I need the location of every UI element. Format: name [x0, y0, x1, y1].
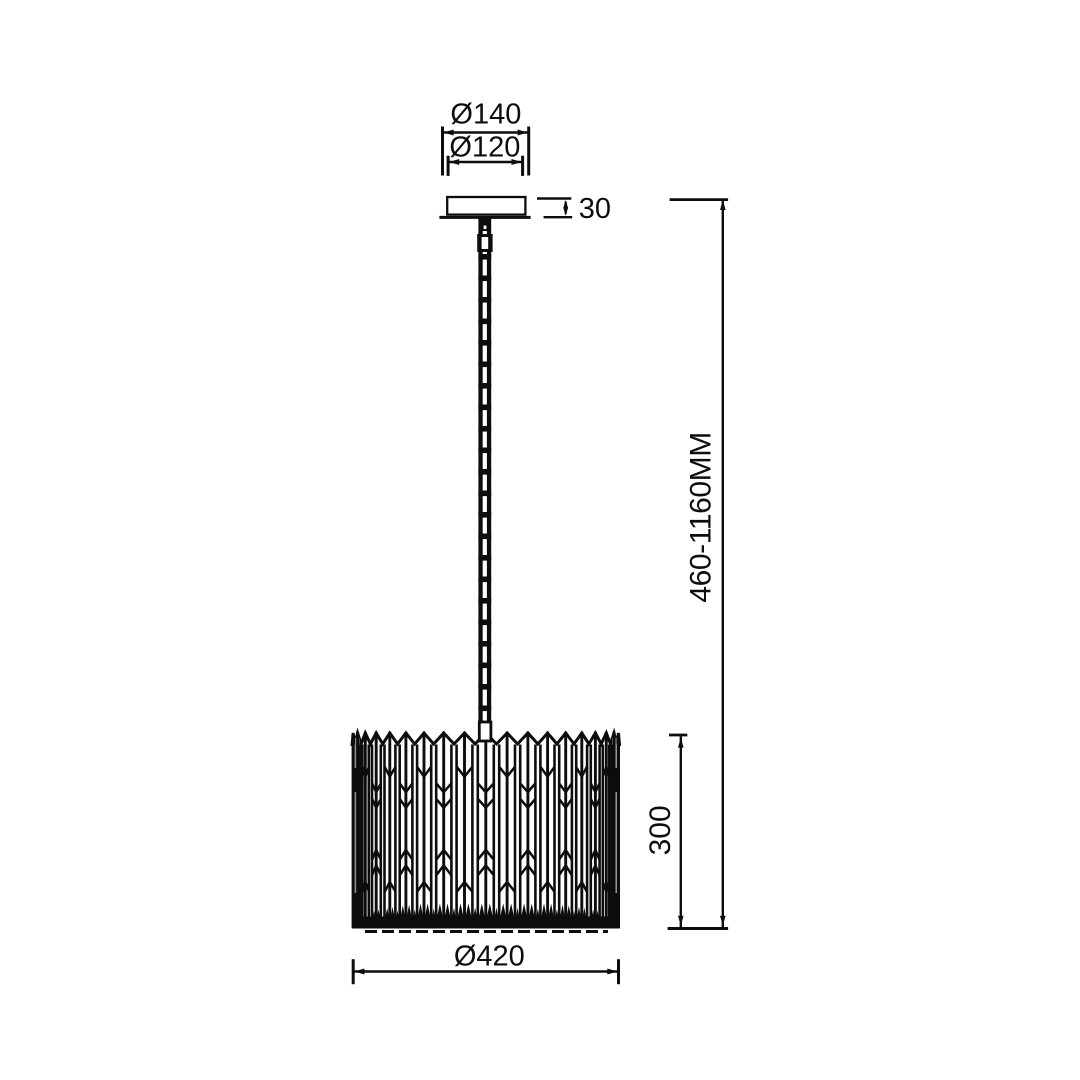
svg-text:460-1160MM: 460-1160MM: [684, 432, 717, 603]
svg-text:Ø120: Ø120: [449, 132, 520, 164]
svg-text:Ø420: Ø420: [454, 941, 525, 973]
svg-text:300: 300: [644, 805, 677, 855]
svg-text:Ø140: Ø140: [450, 99, 521, 131]
svg-text:30: 30: [579, 193, 611, 225]
